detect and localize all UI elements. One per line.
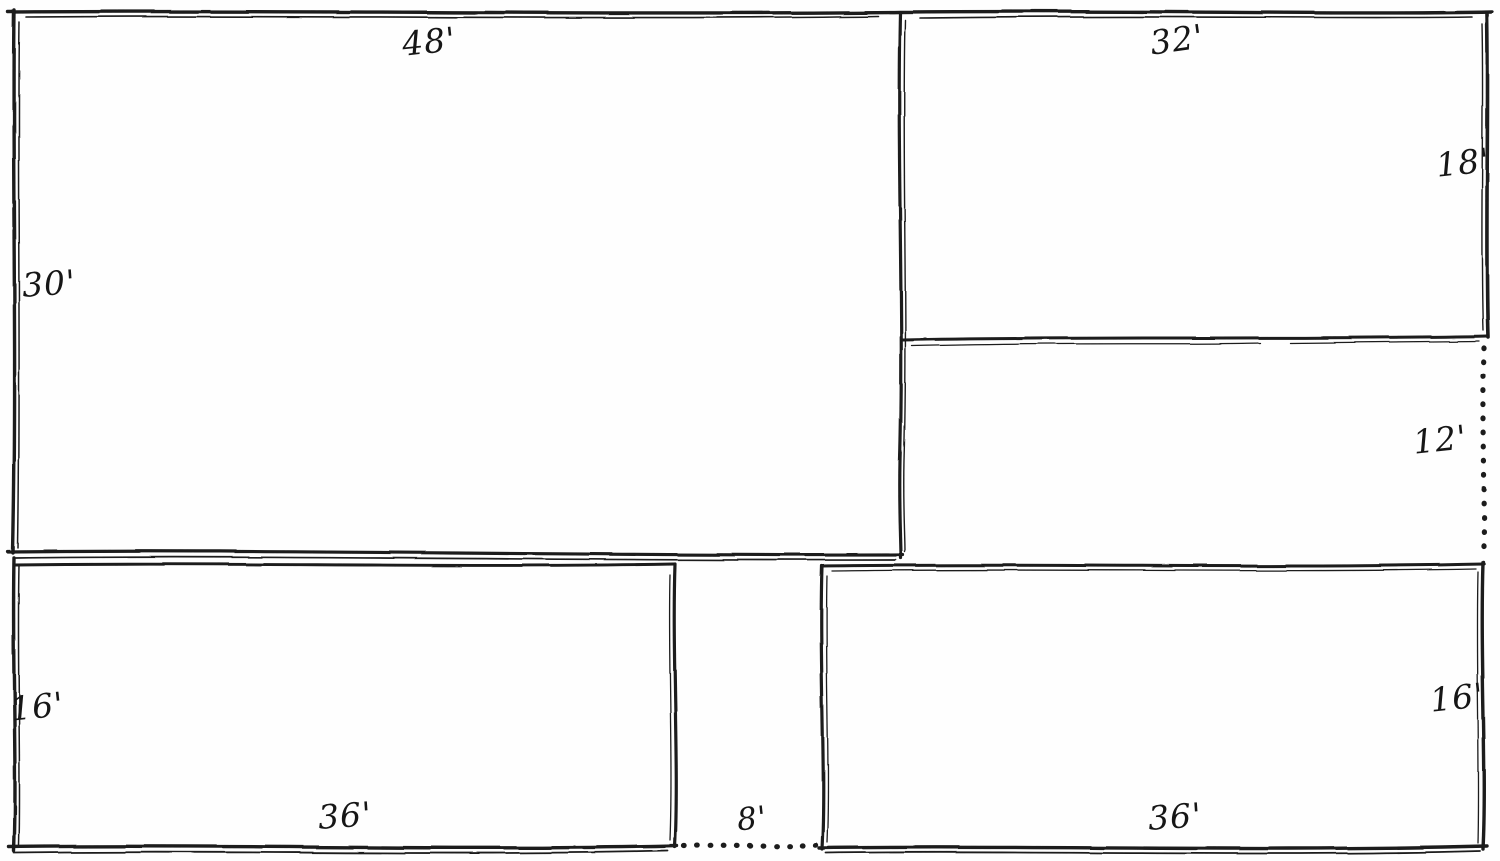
bottom-right-yard-bottom-line — [819, 846, 1487, 849]
bottom-right-yard-left-line — [821, 566, 823, 849]
dim-label-bottom-left-width: 36' — [317, 794, 374, 837]
bottom-left-yard-top-line — [15, 564, 674, 565]
top-wall-line-double — [26, 16, 1472, 18]
center-divider-line — [899, 13, 901, 558]
top-wall-line — [8, 12, 1492, 13]
dim-label-top-right-width: 32' — [1148, 16, 1207, 62]
middle-right-dotted-boundary — [1483, 348, 1484, 557]
left-wall-upper-line-double — [18, 22, 19, 548]
dim-label-bottom-left-height: 16' — [8, 684, 66, 728]
top-right-yard-bottom-line — [903, 336, 1487, 340]
top-left-yard-bottom-line — [8, 551, 903, 555]
dim-label-gap-width: 8' — [735, 800, 769, 839]
top-right-yard-bottom-line-double — [912, 341, 1479, 346]
bottom-left-yard-bottom-line — [9, 846, 677, 848]
bottom-left-yard-right-line — [674, 564, 676, 847]
dim-label-middle-right-height: 12' — [1411, 417, 1469, 461]
bottom-right-yard-left-line-double — [827, 576, 828, 842]
bottom-left-yard-right-line-double — [670, 575, 671, 840]
dim-label-bottom-right-width: 36' — [1147, 795, 1204, 838]
bottom-right-yard-top-line-double — [832, 569, 1476, 571]
bottom-right-yard-top-line — [822, 564, 1484, 566]
bottom-left-yard-bottom-line-double — [14, 851, 668, 853]
center-divider-line-double — [904, 20, 906, 552]
dim-label-top-left-height: 30' — [21, 262, 78, 305]
plot-plan-drawing — [0, 0, 1500, 861]
dim-label-top-right-height: 18' — [1434, 140, 1492, 184]
top-left-yard-bottom-line-double — [16, 557, 896, 560]
bottom-right-yard-bottom-line-double — [826, 851, 1480, 854]
dim-label-bottom-right-height: 16' — [1428, 675, 1486, 719]
left-wall-upper-line — [13, 10, 15, 553]
dim-label-top-left-width: 48' — [400, 19, 458, 63]
gap-dotted-boundary — [684, 845, 818, 846]
plot-plan-figure: 48' 32' 18' 30' 12' 16' 36' 8' 36' 16' — [0, 0, 1500, 861]
